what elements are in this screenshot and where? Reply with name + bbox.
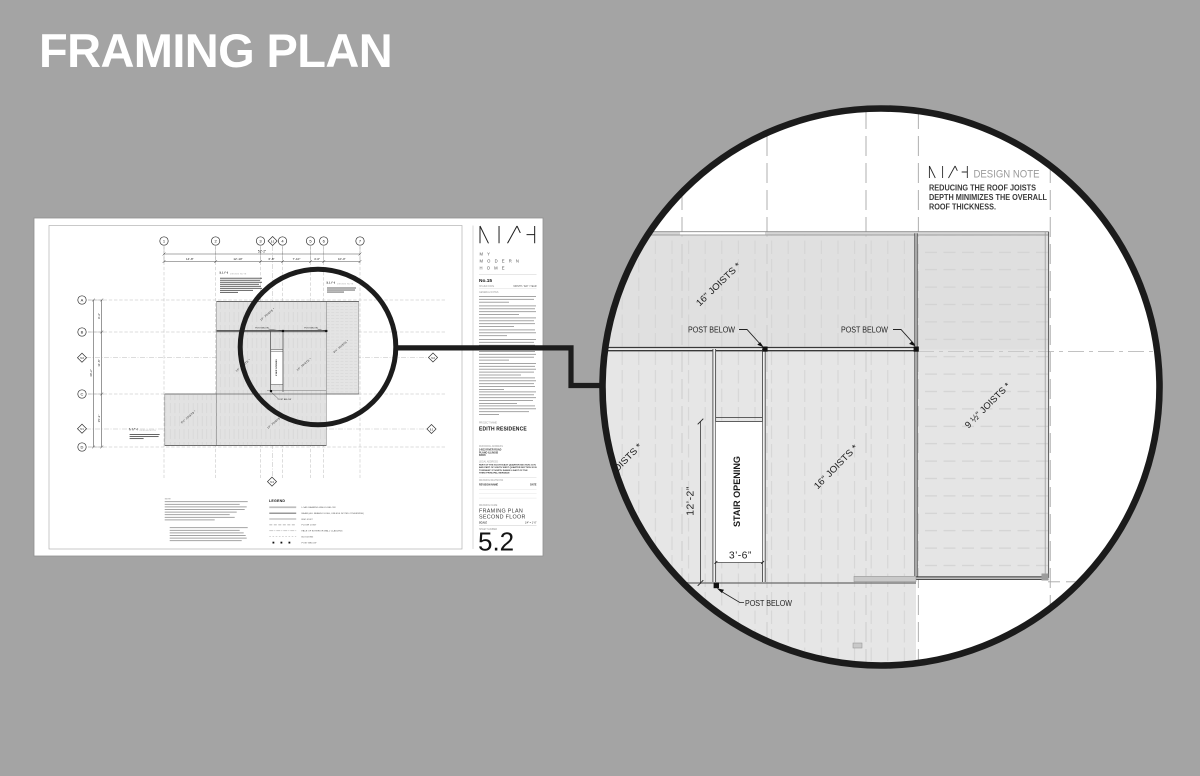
svg-text:BLOCKING: BLOCKING — [302, 537, 314, 539]
svg-text:M Y: M Y — [480, 252, 492, 257]
svg-text:6’-8”: 6’-8” — [268, 257, 274, 261]
svg-text:REVISION NAME: REVISION NAME — [479, 483, 499, 486]
svg-text:1/4” = 1’-0”: 1/4” = 1’-0” — [525, 522, 537, 525]
svg-text:STAIR OPENING: STAIR OPENING — [732, 456, 743, 527]
svg-text:POST BELOW: POST BELOW — [302, 542, 318, 544]
svg-text:SECOND FLOOR: SECOND FLOOR — [479, 514, 526, 520]
svg-text:5.2: 5.2 — [478, 527, 514, 557]
svg-text:15’-2”: 15’-2” — [97, 415, 101, 423]
svg-text:ROOF THICKNESS.: ROOF THICKNESS. — [929, 202, 996, 211]
svg-text:BEAM (ALL BEAMS FLUSH, UNLESS: BEAM (ALL BEAMS FLUSH, UNLESS NOTED OTHE… — [302, 512, 365, 515]
svg-text:TOWNSHIP 37 NORTH RANGE 6 EAST: TOWNSHIP 37 NORTH RANGE 6 EAST OF THE — [479, 469, 528, 472]
svg-text:AND PART OF SOUTH WEST QUARTER: AND PART OF SOUTH WEST QUARTER SECTION 3… — [479, 466, 537, 469]
svg-text:DESIGN NOTE: DESIGN NOTE — [974, 168, 1040, 180]
svg-text:FLOOR JOIST: FLOOR JOIST — [302, 525, 318, 527]
svg-text:DEPTH MINIMIZES THE OVERALL: DEPTH MINIMIZES THE OVERALL — [929, 193, 1047, 202]
svg-text:12’-10”: 12’-10” — [233, 257, 242, 261]
svg-text:B: B — [81, 330, 84, 335]
svg-text:MONTH / DAY / YEAR: MONTH / DAY / YEAR — [514, 285, 537, 288]
svg-text:4’-0”: 4’-0” — [314, 257, 320, 261]
svg-text:No.15: No.15 — [479, 278, 492, 284]
svg-text:PART OF THE SOUTH EAST QUARTER: PART OF THE SOUTH EAST QUARTER SECTION 3… — [479, 464, 536, 467]
svg-text:LEGAL ADDRESS: LEGAL ADDRESS — [479, 460, 498, 463]
svg-text:SCALE: SCALE — [479, 522, 488, 525]
svg-text:60545: 60545 — [479, 454, 486, 457]
svg-text:NOTE: NOTE — [165, 499, 172, 501]
svg-text:FACE OF EXTERIOR WALL CLADDING: FACE OF EXTERIOR WALL CLADDING — [302, 530, 343, 533]
svg-text:POST BELOW: POST BELOW — [255, 327, 269, 329]
svg-text:FRAMING PLAN: FRAMING PLAN — [39, 24, 392, 77]
svg-text:LEGEND: LEGEND — [269, 499, 285, 503]
svg-text:9’-2”: 9’-2” — [97, 313, 101, 319]
svg-text:7’-10”: 7’-10” — [293, 257, 301, 261]
svg-text:C: C — [81, 392, 84, 397]
svg-text:STAIR OPENING: STAIR OPENING — [275, 359, 278, 376]
svg-text:D: D — [81, 445, 84, 450]
svg-text:DESIGN NOTE: DESIGN NOTE — [140, 430, 157, 432]
svg-text:RIM JOIST: RIM JOIST — [302, 519, 314, 521]
svg-text:10’-0”: 10’-0” — [338, 257, 346, 261]
svg-text:POST BELOW: POST BELOW — [688, 325, 735, 334]
svg-text:POST BELOW: POST BELOW — [841, 325, 888, 334]
svg-text:DATE: DATE — [530, 483, 537, 486]
svg-text:PROJECT NAME: PROJECT NAME — [479, 422, 497, 425]
svg-text:3’-6”: 3’-6” — [729, 550, 752, 561]
svg-text:POST BELOW: POST BELOW — [278, 399, 292, 401]
svg-text:DRAWING NAME: DRAWING NAME — [479, 504, 498, 507]
svg-text:POST BELOW: POST BELOW — [745, 599, 792, 608]
svg-text:11’-8”: 11’-8” — [97, 359, 101, 366]
svg-text:MUNICIPAL ADDRESS: MUNICIPAL ADDRESS — [479, 445, 503, 448]
svg-text:POST BELOW: POST BELOW — [304, 327, 318, 329]
svg-text:DESIGN NOTE: DESIGN NOTE — [230, 273, 247, 275]
svg-text:DESIGN NOTE: DESIGN NOTE — [337, 283, 354, 285]
svg-text:DRAWING REVISIONS: DRAWING REVISIONS — [479, 479, 504, 482]
svg-text:ISSUED DATE: ISSUED DATE — [479, 285, 495, 288]
svg-text:REDUCING THE ROOF JOISTS: REDUCING THE ROOF JOISTS — [929, 183, 1036, 192]
svg-text:52’-2”: 52’-2” — [258, 249, 266, 253]
svg-text:12’-2”: 12’-2” — [686, 486, 697, 516]
svg-text:M O D E R N: M O D E R N — [480, 259, 521, 264]
svg-text:THIRD PRINCIPAL MERIDIAN: THIRD PRINCIPAL MERIDIAN — [479, 471, 510, 474]
svg-text:A: A — [81, 298, 84, 303]
svg-text:40’-2”: 40’-2” — [89, 369, 93, 377]
svg-text:H O M E: H O M E — [480, 265, 507, 270]
svg-text:EDITH RESIDENCE: EDITH RESIDENCE — [479, 427, 527, 433]
svg-text:GENERAL NOTES: GENERAL NOTES — [479, 291, 499, 294]
svg-text:14’-8”: 14’-8” — [186, 257, 194, 261]
svg-text:LOAD BEARING WALLS BELOW: LOAD BEARING WALLS BELOW — [302, 506, 337, 509]
